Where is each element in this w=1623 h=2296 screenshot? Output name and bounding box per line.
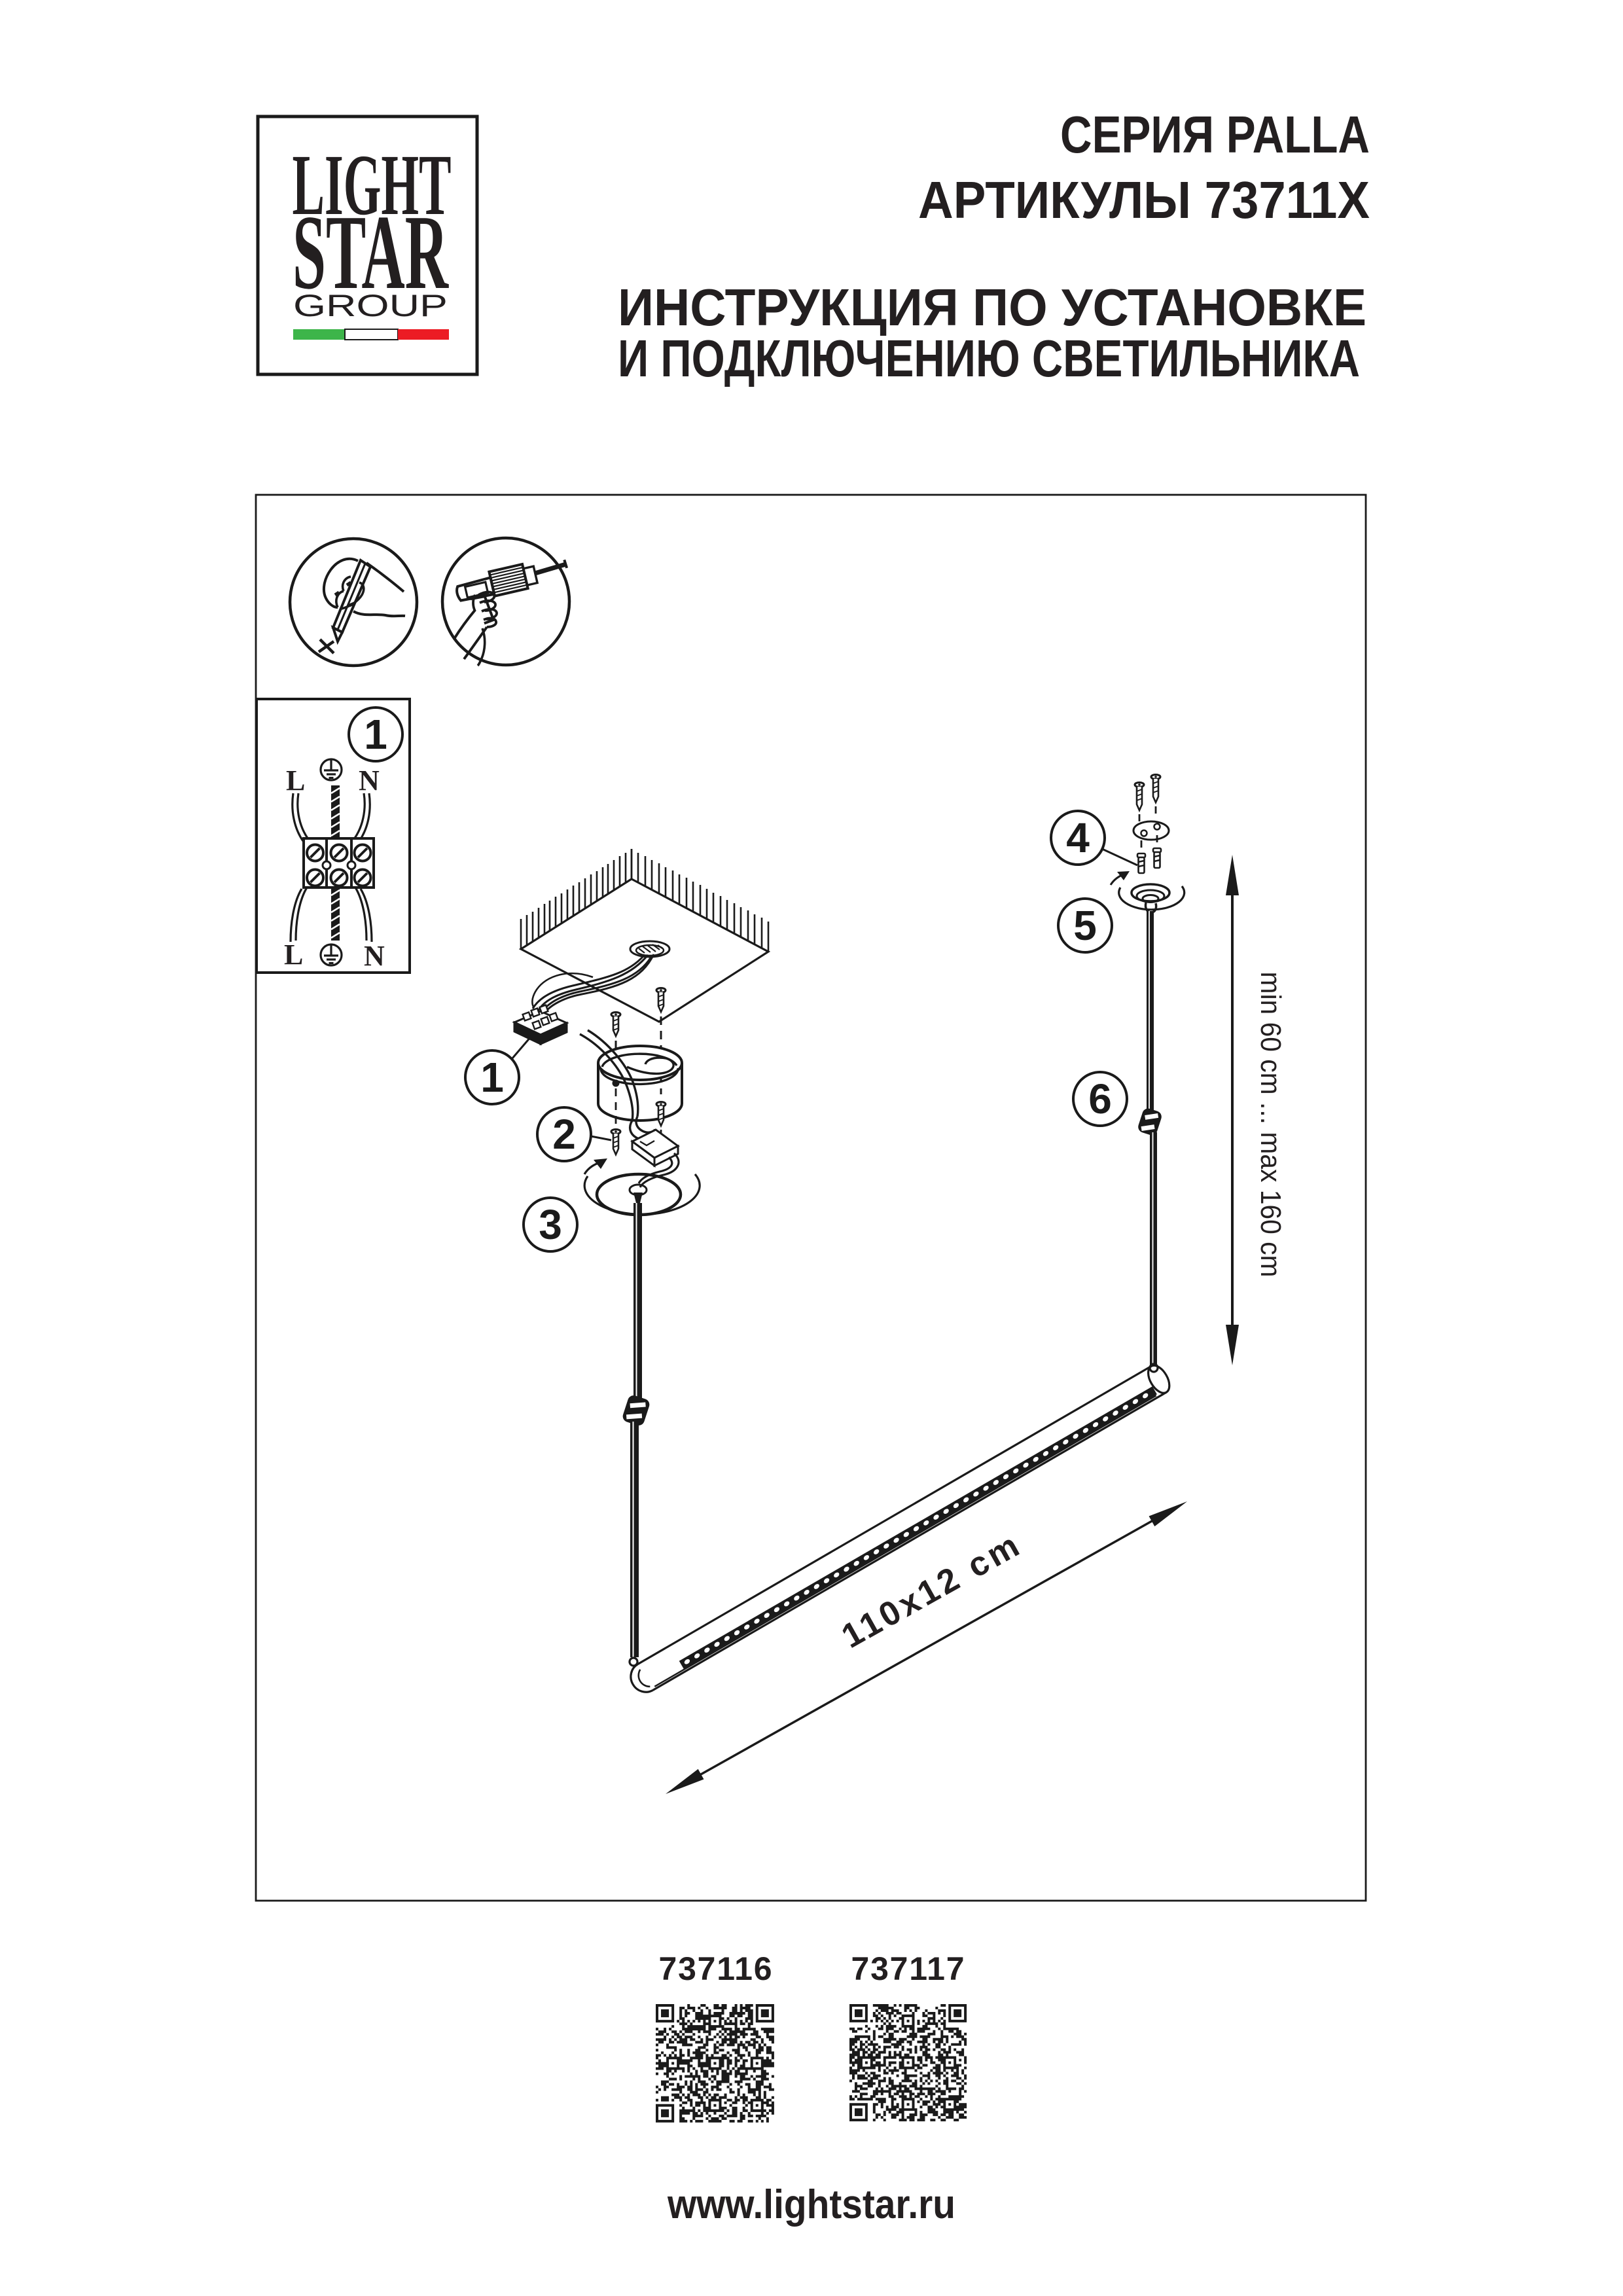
svg-text:АРТИКУЛЫ 73711X: АРТИКУЛЫ 73711X — [918, 171, 1370, 229]
svg-text:2: 2 — [552, 1111, 576, 1158]
svg-text:И ПОДКЛЮЧЕНИЮ СВЕТИЛЬНИКА: И ПОДКЛЮЧЕНИЮ СВЕТИЛЬНИКА — [618, 329, 1360, 387]
svg-text:www.lightstar.ru: www.lightstar.ru — [667, 2182, 955, 2227]
svg-text:1: 1 — [480, 1054, 504, 1101]
svg-text:1: 1 — [364, 711, 387, 758]
svg-text:N: N — [359, 764, 380, 797]
svg-text:737117: 737117 — [851, 1950, 965, 1987]
svg-text:6: 6 — [1088, 1075, 1112, 1122]
svg-text:ИНСТРУКЦИЯ ПО УСТАНОВКЕ: ИНСТРУКЦИЯ ПО УСТАНОВКЕ — [618, 278, 1366, 336]
svg-text:СЕРИЯ PALLA: СЕРИЯ PALLA — [1060, 105, 1370, 164]
svg-text:737116: 737116 — [659, 1950, 772, 1987]
svg-text:N: N — [364, 940, 385, 972]
svg-text:3: 3 — [539, 1201, 562, 1248]
svg-text:GROUP: GROUP — [293, 288, 448, 323]
svg-text:L: L — [284, 939, 303, 971]
svg-text:5: 5 — [1073, 902, 1097, 949]
svg-text:4: 4 — [1066, 814, 1090, 861]
svg-text:L: L — [286, 764, 305, 797]
svg-text:min 60 cm ... max 160 cm: min 60 cm ... max 160 cm — [1255, 972, 1287, 1278]
